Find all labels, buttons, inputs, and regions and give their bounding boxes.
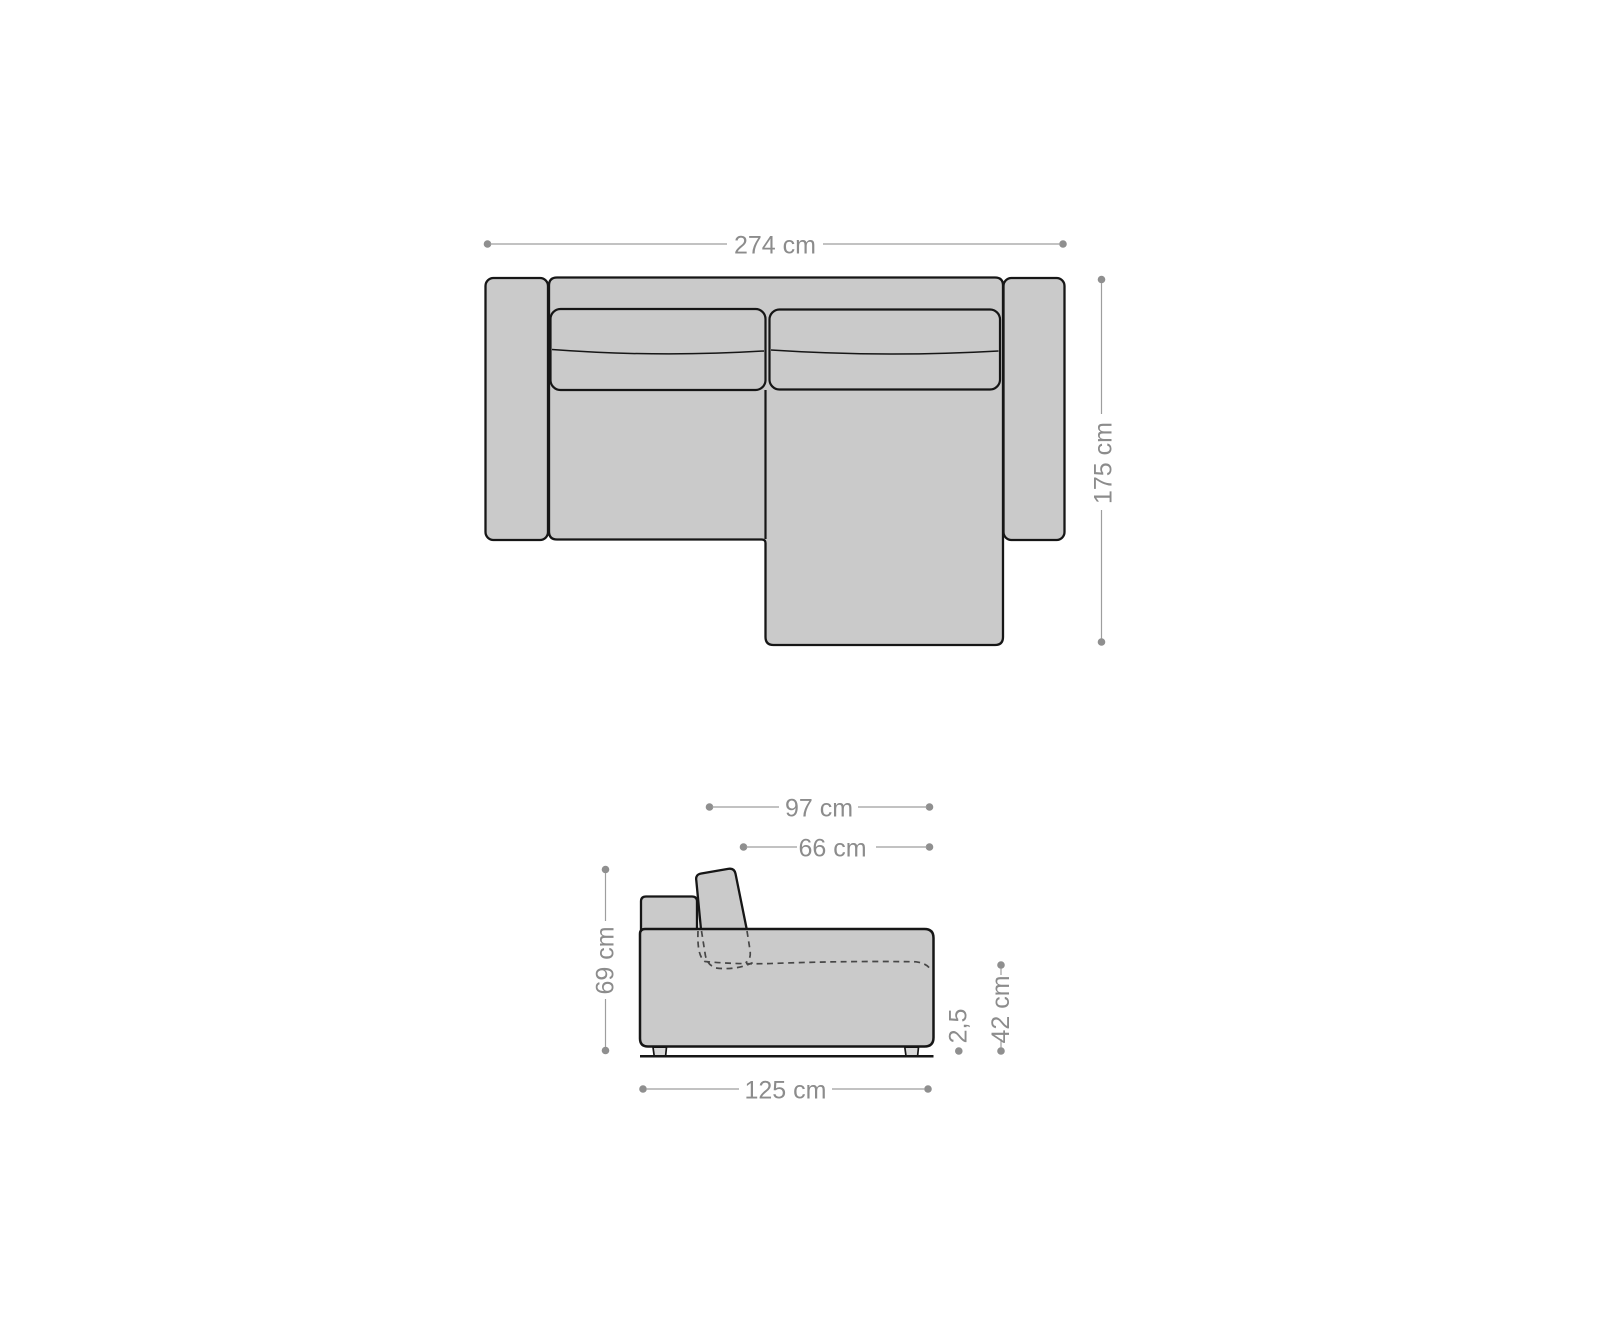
svg-text:274 cm: 274 cm	[734, 232, 816, 260]
svg-text:97 cm: 97 cm	[785, 795, 853, 823]
svg-text:125 cm: 125 cm	[745, 1077, 827, 1105]
svg-text:69 cm: 69 cm	[592, 926, 620, 994]
svg-text:66 cm: 66 cm	[798, 835, 866, 863]
svg-text:175 cm: 175 cm	[1090, 422, 1118, 504]
svg-text:42 cm: 42 cm	[987, 975, 1015, 1043]
svg-text:2,5: 2,5	[945, 1009, 973, 1044]
